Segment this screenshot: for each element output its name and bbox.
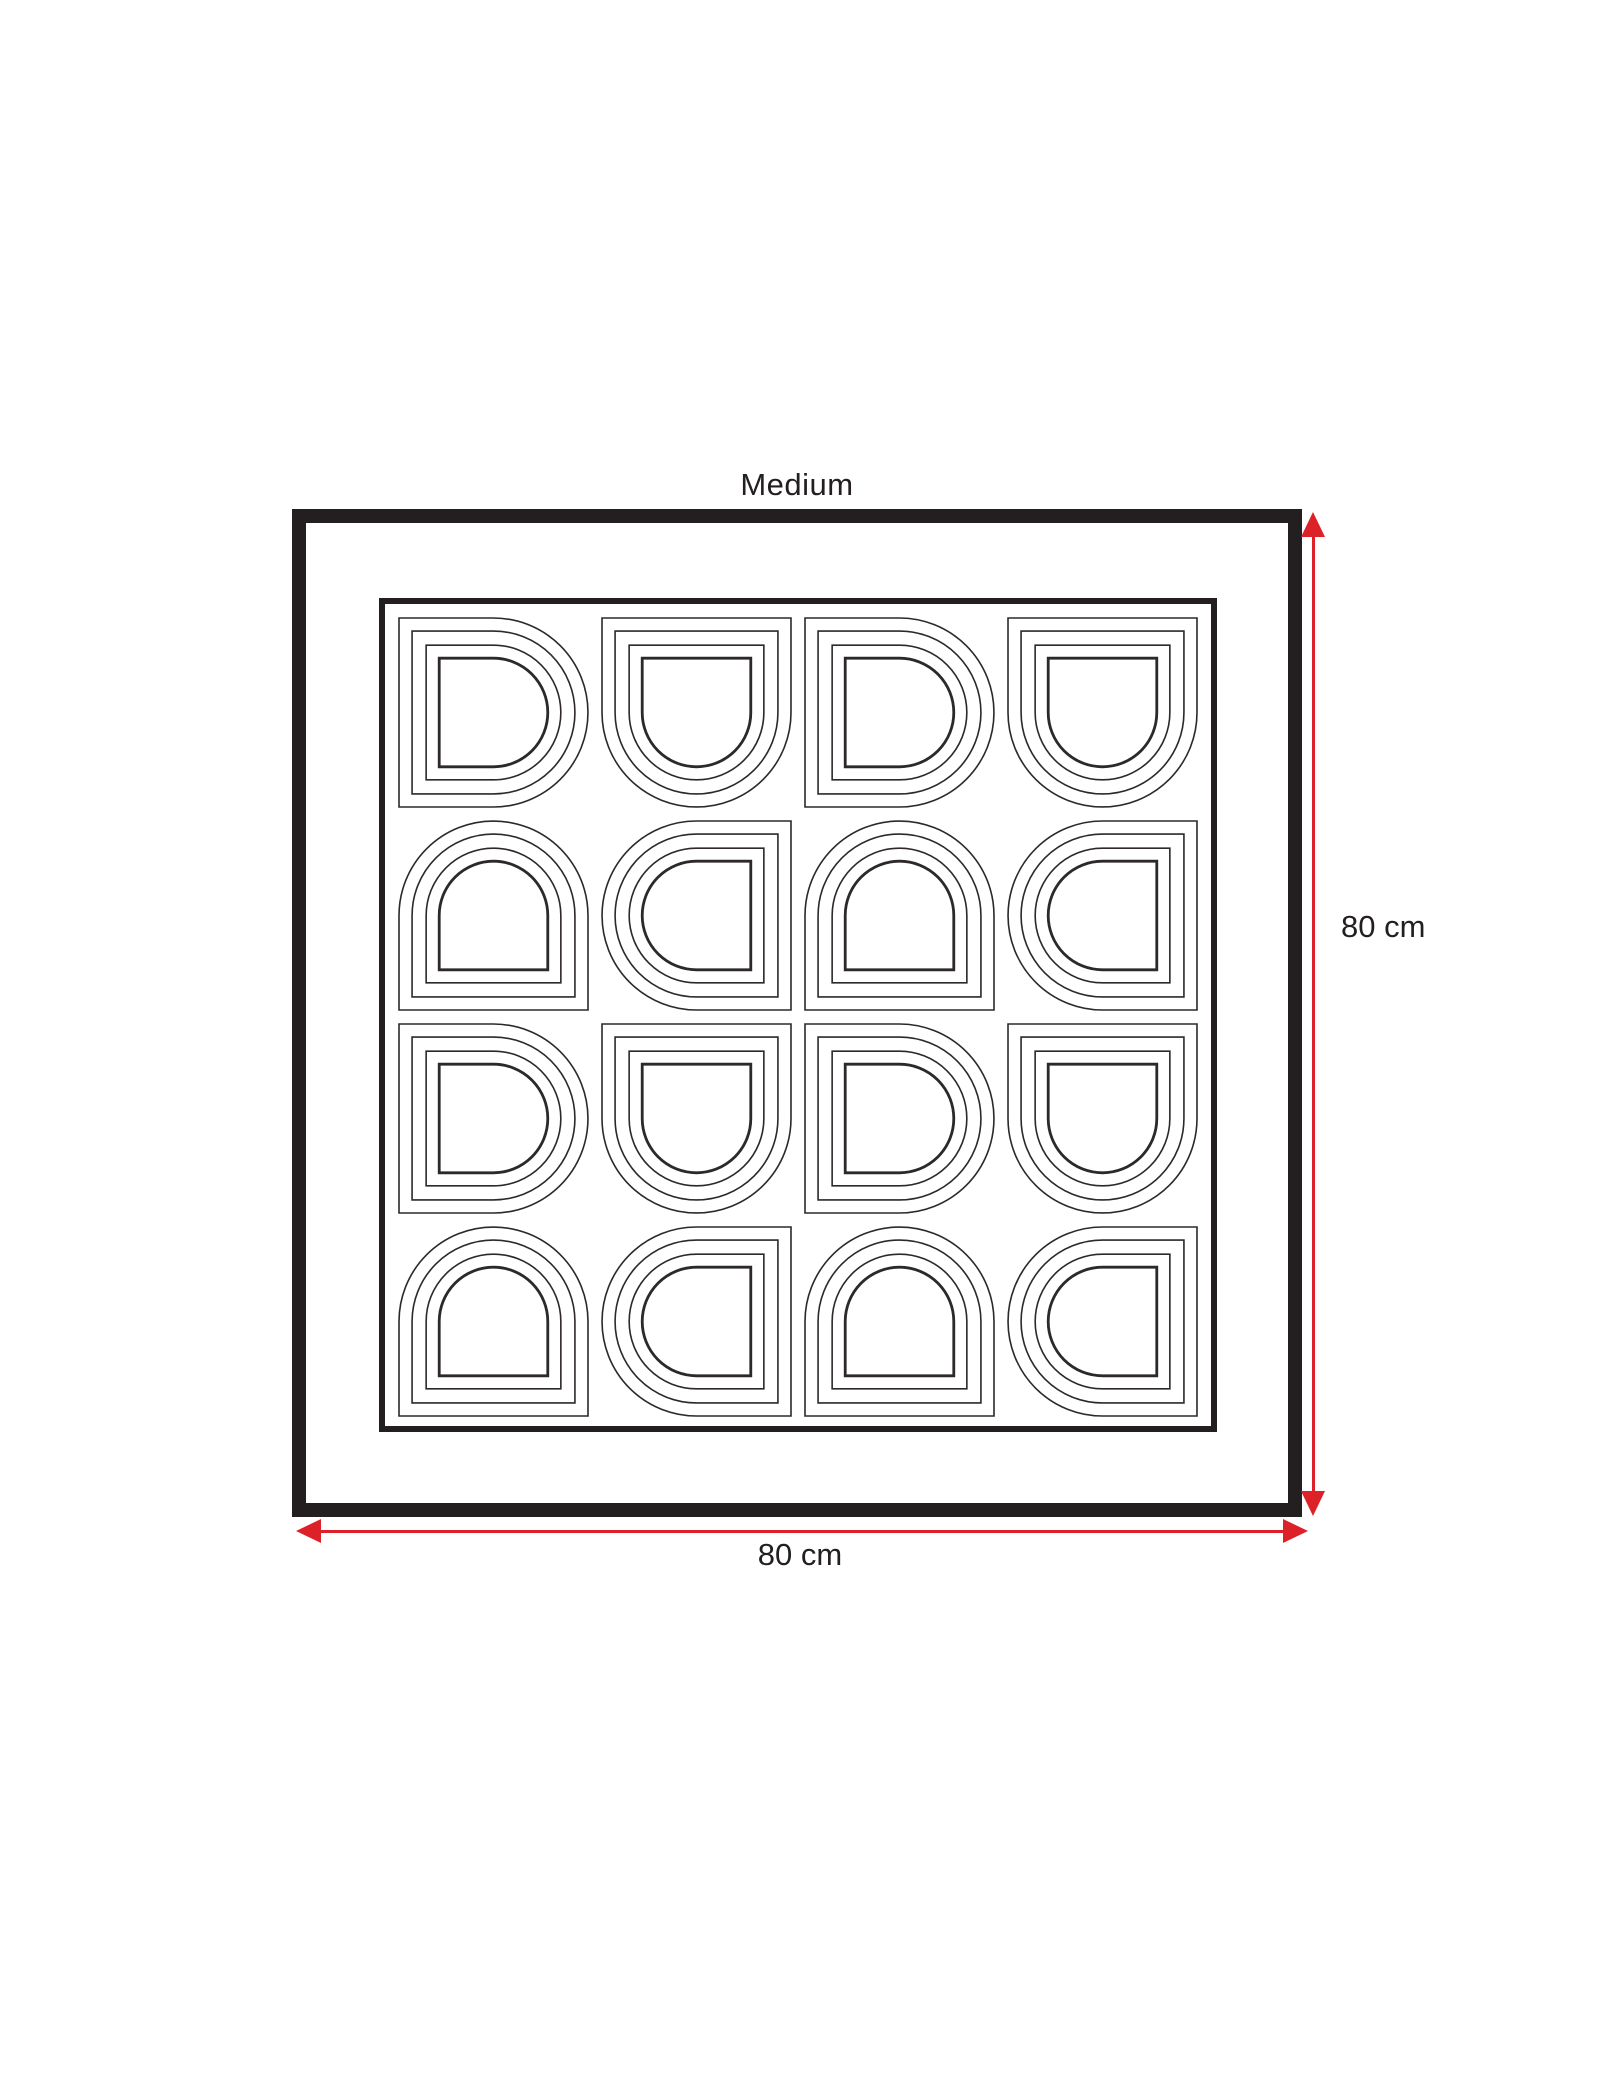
- nested-d-motif-icon: [601, 820, 792, 1011]
- nested-d-motif-icon: [601, 1226, 792, 1417]
- width-dimension-rule: [310, 1530, 1294, 1533]
- height-dimension-rule: [1312, 526, 1315, 1502]
- pattern-cell: [398, 1226, 589, 1417]
- pattern-cell: [1007, 617, 1198, 808]
- nested-d-motif-icon: [398, 617, 589, 808]
- pattern-cell: [398, 1023, 589, 1214]
- nested-d-motif-icon: [601, 1023, 792, 1214]
- nested-d-motif-icon: [1007, 1226, 1198, 1417]
- pattern-cell: [804, 1226, 995, 1417]
- height-dimension-line: [1301, 512, 1326, 1516]
- pattern-cell: [1007, 1023, 1198, 1214]
- product-size-diagram: Medium 80 cm 80 cm: [0, 0, 1600, 2080]
- nested-d-motif-icon: [804, 1023, 995, 1214]
- width-dimension-label: 80 cm: [292, 1538, 1308, 1572]
- arrowhead-down-icon: [1301, 1491, 1325, 1516]
- pattern-cell: [1007, 1226, 1198, 1417]
- pattern-cell: [804, 617, 995, 808]
- nested-d-motif-icon: [1007, 1023, 1198, 1214]
- pattern-cell: [804, 1023, 995, 1214]
- nested-d-motif-icon: [398, 1023, 589, 1214]
- nested-d-motif-icon: [398, 1226, 589, 1417]
- nested-d-motif-icon: [804, 617, 995, 808]
- nested-d-motif-icon: [398, 820, 589, 1011]
- pattern-grid: [398, 617, 1198, 1413]
- pattern-cell: [398, 820, 589, 1011]
- pattern-cell: [398, 617, 589, 808]
- nested-d-motif-icon: [804, 1226, 995, 1417]
- size-title: Medium: [292, 468, 1302, 502]
- pattern-cell: [601, 1023, 792, 1214]
- nested-d-motif-icon: [601, 617, 792, 808]
- nested-d-motif-icon: [804, 820, 995, 1011]
- pattern-cell: [1007, 820, 1198, 1011]
- nested-d-motif-icon: [1007, 820, 1198, 1011]
- pattern-cell: [601, 1226, 792, 1417]
- pattern-cell: [601, 820, 792, 1011]
- pattern-cell: [804, 820, 995, 1011]
- height-dimension-label: 80 cm: [1341, 910, 1425, 944]
- pattern-cell: [601, 617, 792, 808]
- nested-d-motif-icon: [1007, 617, 1198, 808]
